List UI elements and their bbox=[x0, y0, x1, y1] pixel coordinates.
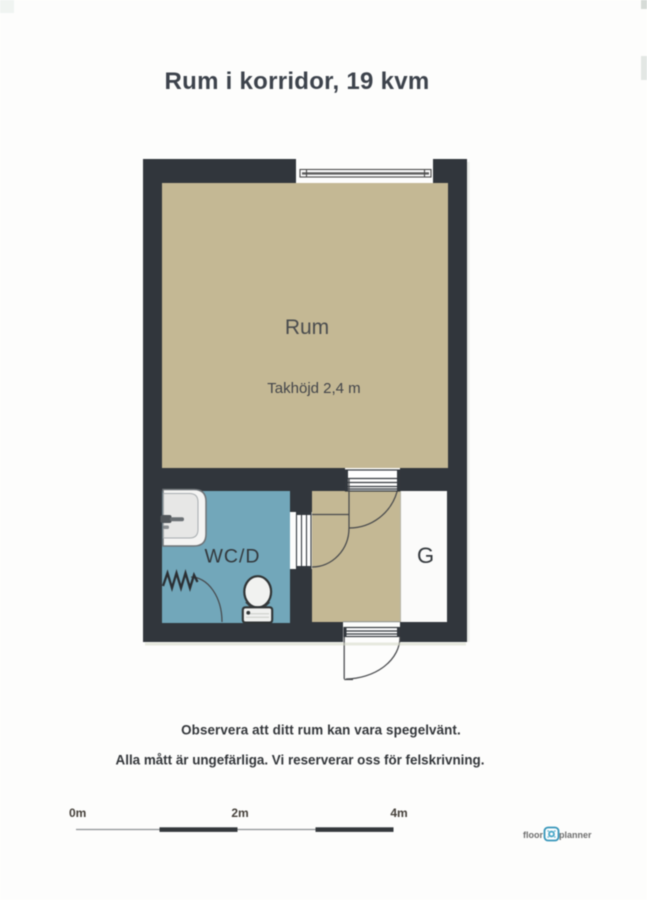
svg-text:floor: floor bbox=[523, 830, 543, 840]
svg-text:WC/D: WC/D bbox=[205, 546, 261, 568]
svg-text:Alla mått är ungefärliga. Vi r: Alla mått är ungefärliga. Vi reserverar … bbox=[116, 753, 485, 768]
svg-text:0m: 0m bbox=[69, 806, 86, 820]
svg-text:Observera att ditt rum kan var: Observera att ditt rum kan vara spegelvä… bbox=[181, 723, 461, 738]
svg-text:Rum i korridor, 19 kvm: Rum i korridor, 19 kvm bbox=[165, 68, 430, 95]
svg-text:Rum: Rum bbox=[285, 316, 329, 339]
svg-text:planner: planner bbox=[559, 830, 592, 840]
svg-text:G: G bbox=[417, 543, 434, 568]
svg-text:4m: 4m bbox=[390, 806, 407, 820]
svg-text:2m: 2m bbox=[231, 806, 248, 820]
svg-text:Takhöjd 2,4 m: Takhöjd 2,4 m bbox=[267, 380, 360, 397]
